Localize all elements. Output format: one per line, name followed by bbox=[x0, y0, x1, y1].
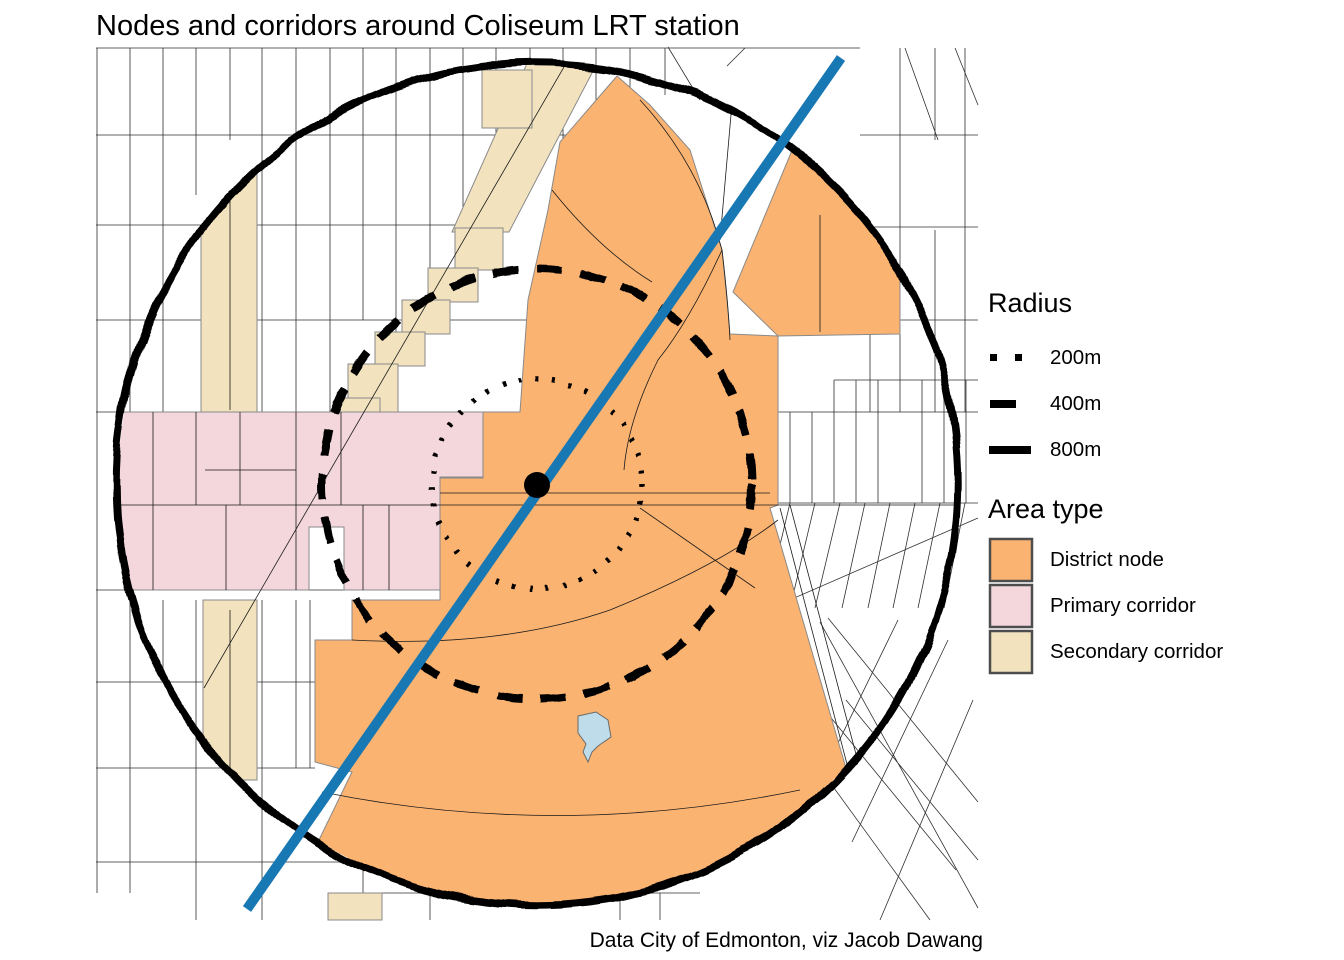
legend-label-primary-corridor: Primary corridor bbox=[1050, 594, 1196, 618]
secondary-corridor-south-piece bbox=[328, 893, 382, 920]
legend-radius: Radius 200m 400m 800m bbox=[988, 288, 1338, 473]
legend-label-200m: 200m bbox=[1050, 346, 1101, 370]
legend-label-800m: 800m bbox=[1050, 438, 1101, 462]
legend-label-district-node: District node bbox=[1050, 548, 1164, 572]
primary-corridor-swatch bbox=[988, 583, 1034, 629]
legend-row-district-node: District node bbox=[988, 537, 1338, 583]
legend-row-primary-corridor: Primary corridor bbox=[988, 583, 1338, 629]
caption: Data City of Edmonton, viz Jacob Dawang bbox=[553, 929, 983, 953]
station-dot bbox=[524, 472, 550, 498]
legend-row-800m: 800m bbox=[988, 427, 1338, 473]
secondary-corridor-swatch bbox=[988, 629, 1034, 675]
legend-row-secondary-corridor: Secondary corridor bbox=[988, 629, 1338, 675]
district-node-swatch bbox=[988, 537, 1034, 583]
legend-area-type-title: Area type bbox=[988, 494, 1338, 525]
dashed-line-key-icon bbox=[988, 399, 1034, 409]
dotted-line-key-icon bbox=[988, 353, 1034, 363]
primary-corridor-area bbox=[112, 412, 483, 590]
legend-row-200m: 200m bbox=[988, 335, 1338, 381]
legend-radius-title: Radius bbox=[988, 288, 1338, 319]
legend-label-400m: 400m bbox=[1050, 392, 1101, 416]
page-title: Nodes and corridors around Coliseum LRT … bbox=[96, 10, 740, 43]
legend-area-type: Area type District node Primary corridor… bbox=[988, 494, 1338, 675]
legend-row-400m: 400m bbox=[988, 381, 1338, 427]
map-canvas bbox=[0, 0, 1344, 960]
legend-label-secondary-corridor: Secondary corridor bbox=[1050, 640, 1223, 664]
solid-line-key-icon bbox=[988, 445, 1034, 455]
